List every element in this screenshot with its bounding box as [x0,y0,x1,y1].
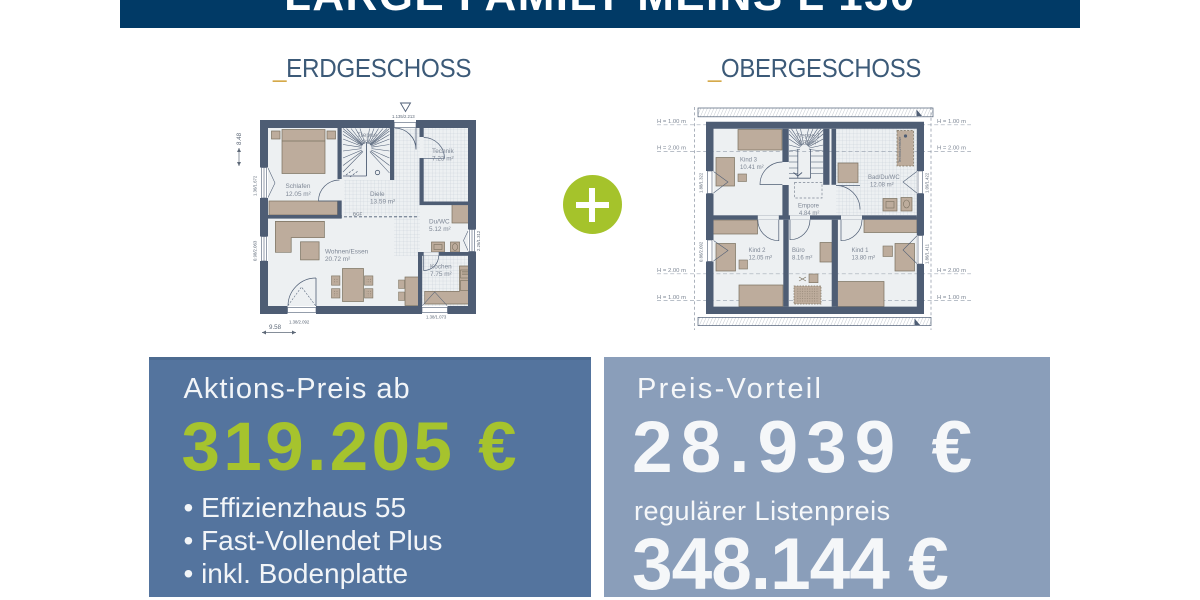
svg-text:5.12 m²: 5.12 m² [429,226,451,233]
svg-text:4.39 m²: 4.39 m² [798,141,818,147]
svg-text:8.16 m²: 8.16 m² [792,256,812,262]
svg-text:Büro: Büro [792,248,805,254]
svg-text:0.86/2.092: 0.86/2.092 [699,241,704,262]
svg-text:1.135/2.213: 1.135/2.213 [392,114,415,119]
svg-text:Technik: Technik [432,148,454,155]
svg-text:H = 2.00 m: H = 2.00 m [657,268,686,274]
svg-text:Kind 1: Kind 1 [852,248,870,254]
svg-text:Schlafen: Schlafen [286,183,311,190]
svg-text:12.05 m²: 12.05 m² [286,191,311,198]
svg-text:H = 1.00 m: H = 1.00 m [657,295,686,301]
svg-text:7.23 m²: 7.23 m² [432,156,454,163]
svg-text:Treppe 1: Treppe 1 [796,134,820,140]
svg-text:1.86/1.411: 1.86/1.411 [925,243,930,264]
svg-text:1.38/1.073: 1.38/1.073 [426,315,447,320]
svg-text:H = 1.00 m: H = 1.00 m [937,295,966,301]
svg-text:H = 1.00 m: H = 1.00 m [937,119,966,125]
svg-text:Diele: Diele [370,191,385,198]
svg-text:10.41 m²: 10.41 m² [740,165,764,171]
svg-text:Wohnen/Essen: Wohnen/Essen [325,249,369,256]
svg-text:12.05 m²: 12.05 m² [749,256,773,262]
svg-text:9.58: 9.58 [269,324,282,331]
svg-text:1.09/1.422: 1.09/1.422 [925,172,930,193]
svg-text:H = 2.00 m: H = 2.00 m [937,268,966,274]
svg-text:Kochen: Kochen [430,264,452,271]
svg-text:Kind 3: Kind 3 [740,158,758,164]
svg-text:H = 1.00 m: H = 1.00 m [657,119,686,125]
svg-text:1.38/2.092: 1.38/2.092 [289,320,310,325]
svg-text:H = 2.00 m: H = 2.00 m [937,146,966,152]
svg-text:BGF: BGF [353,212,363,217]
svg-text:H = 2.00 m: H = 2.00 m [657,146,686,152]
svg-text:Technikzentrale: Technikzentrale [898,137,902,163]
svg-text:Du/WC: Du/WC [429,219,450,226]
svg-text:1.93 m²: 1.93 m² [357,139,379,146]
svg-text:1.88/1.322: 1.88/1.322 [699,172,704,193]
svg-text:4.84 m²: 4.84 m² [799,211,819,217]
svg-text:13.59 m²: 13.59 m² [370,199,395,206]
svg-text:Empore: Empore [798,204,820,210]
svg-text:20.72 m²: 20.72 m² [325,256,350,263]
svg-text:8.48: 8.48 [236,132,243,145]
svg-text:7.75 m²: 7.75 m² [430,271,452,278]
svg-text:1.36/1.672: 1.36/1.672 [253,175,258,196]
svg-text:Bad/Du/WC: Bad/Du/WC [868,175,900,181]
svg-text:0.98/2.063: 0.98/2.063 [253,240,258,261]
svg-text:2.26/1.312: 2.26/1.312 [476,230,481,251]
svg-text:Kind 2: Kind 2 [749,248,767,254]
svg-text:12.08 m²: 12.08 m² [870,183,894,189]
svg-text:13.80 m²: 13.80 m² [852,256,876,262]
svg-text:Treppe: Treppe [357,132,377,139]
